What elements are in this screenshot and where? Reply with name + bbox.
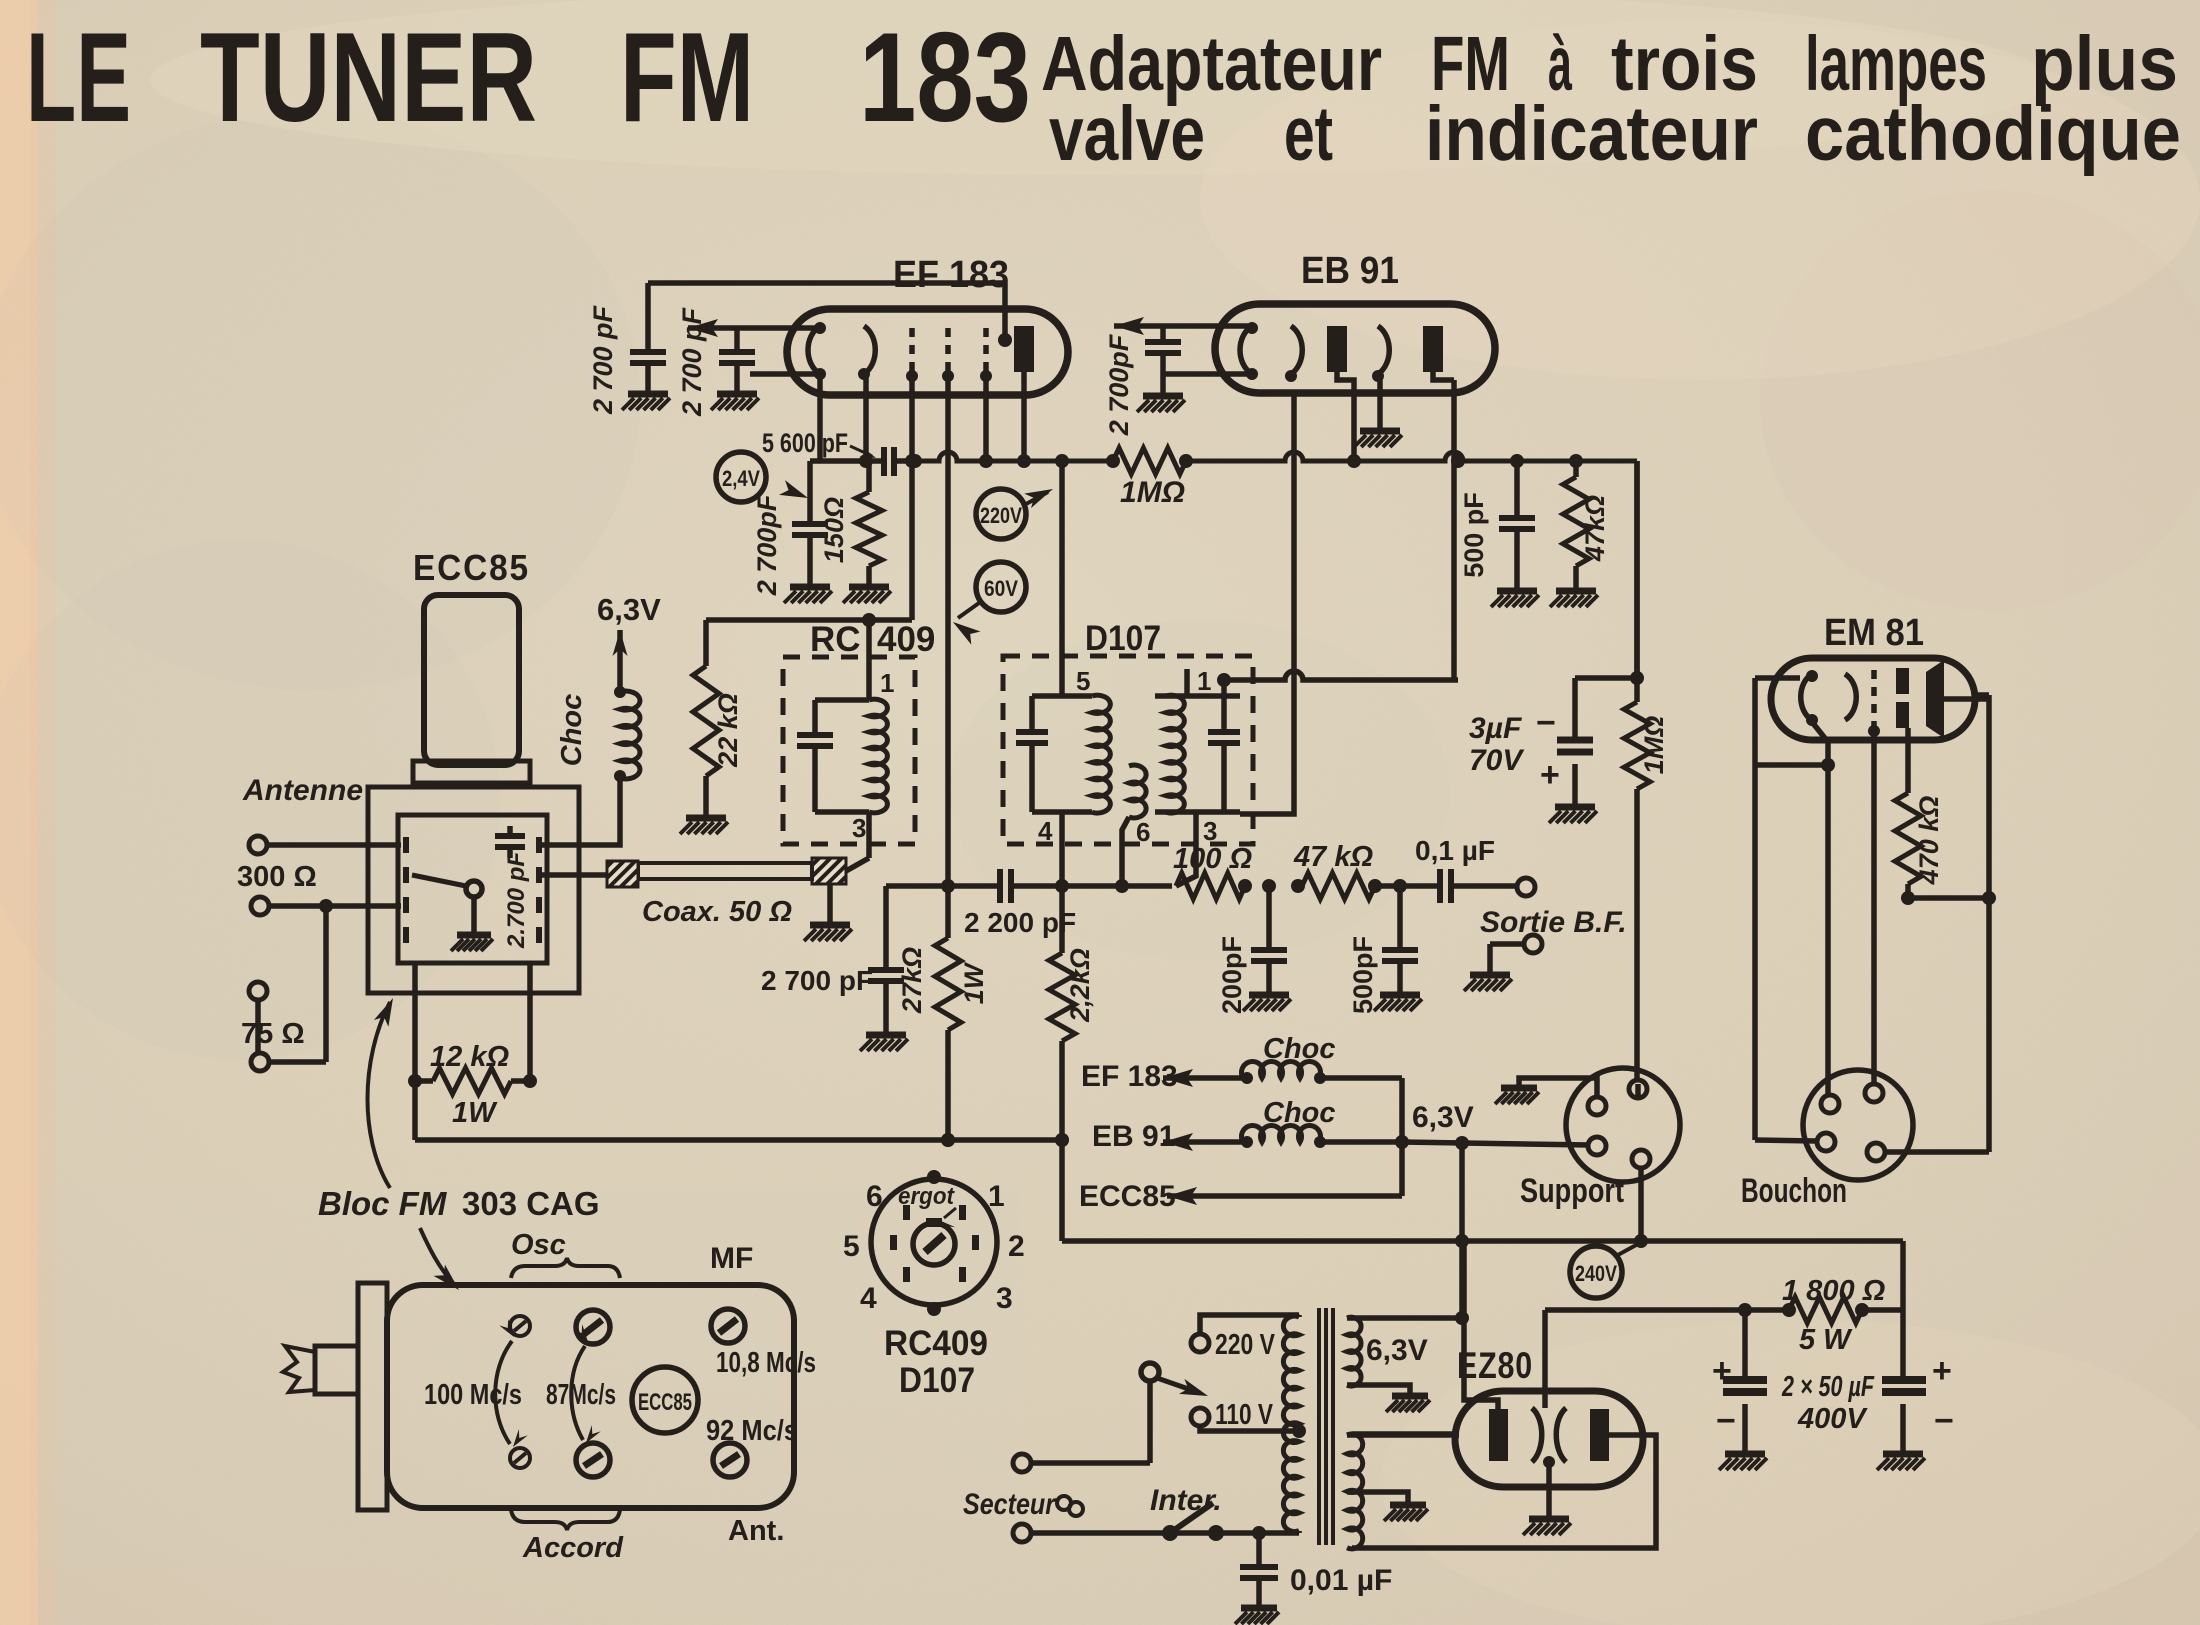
svg-text:0,01 µF: 0,01 µF [1290,1564,1392,1597]
svg-text:92 Mc/s: 92 Mc/s [706,1415,798,1447]
svg-text:2.700 pF: 2.700 pF [503,851,530,949]
svg-text:2 700pF: 2 700pF [1104,333,1134,436]
svg-text:2 700 pF: 2 700 pF [588,304,618,415]
svg-text:LE: LE [26,6,131,148]
svg-text:FM: FM [620,6,754,148]
svg-text:Bouchon: Bouchon [1741,1172,1847,1210]
svg-text:6,3V: 6,3V [597,592,661,627]
svg-text:3: 3 [1203,816,1217,846]
svg-text:Choc: Choc [1263,1097,1336,1129]
svg-text:1 800 Ω: 1 800 Ω [1782,1275,1886,1307]
svg-text:220V: 220V [980,503,1022,528]
svg-text:+: + [1932,1352,1952,1390]
svg-text:100 Ω: 100 Ω [1173,843,1252,875]
svg-text:22 kΩ: 22 kΩ [713,693,743,768]
svg-text:5: 5 [843,1230,860,1263]
svg-text:D107: D107 [899,1361,975,1400]
svg-text:EB 91: EB 91 [1092,1120,1175,1153]
svg-text:6: 6 [866,1180,883,1213]
svg-text:Support: Support [1520,1172,1624,1210]
svg-text:EF 183: EF 183 [893,254,1009,296]
svg-text:+: + [1712,1352,1732,1390]
svg-text:MF: MF [710,1242,753,1275]
svg-text:500 pF: 500 pF [1459,492,1489,578]
svg-text:70V: 70V [1469,744,1525,777]
svg-text:1: 1 [880,668,894,698]
svg-text:Choc: Choc [556,694,588,767]
svg-text:0,1 µF: 0,1 µF [1415,835,1495,866]
svg-text:valve: valve [1049,91,1205,177]
svg-text:Coax. 50 Ω: Coax. 50 Ω [642,896,792,928]
svg-text:1W: 1W [452,1097,498,1129]
svg-text:470 kΩ: 470 kΩ [1914,796,1944,886]
svg-text:27kΩ: 27kΩ [897,947,927,1014]
svg-text:D107: D107 [1085,619,1161,658]
svg-text:2,2kΩ: 2,2kΩ [1065,948,1095,1023]
svg-text:Secteur: Secteur [963,1488,1057,1521]
svg-text:3µF: 3µF [1469,712,1522,745]
svg-text:10,8 Mc/s: 10,8 Mc/s [716,1347,816,1379]
svg-text:60V: 60V [984,576,1018,601]
svg-text:ergot: ergot [898,1183,955,1210]
svg-text:6,3V: 6,3V [1412,1101,1474,1134]
svg-text:300 Ω: 300 Ω [237,861,317,893]
svg-text:5: 5 [1076,666,1090,696]
svg-text:RC409: RC409 [884,1324,988,1363]
svg-text:ECC85: ECC85 [1079,1180,1176,1213]
svg-text:1: 1 [1197,666,1211,696]
svg-text:cathodique: cathodique [1805,91,2181,177]
svg-text:−: − [1934,1402,1954,1440]
svg-text:3: 3 [996,1282,1013,1315]
svg-text:500pF: 500pF [1348,936,1378,1014]
svg-text:2 700 pF: 2 700 pF [761,965,873,996]
svg-text:−: − [1536,704,1556,742]
svg-text:2 700pF: 2 700pF [752,493,782,596]
svg-text:Sortie B.F.: Sortie B.F. [1480,906,1627,939]
svg-text:240V: 240V [1575,1261,1617,1286]
svg-text:et: et [1284,91,1333,177]
svg-text:Antenne: Antenne [242,774,363,807]
svg-text:2 × 50 µF: 2 × 50 µF [1781,1371,1875,1403]
svg-text:110 V: 110 V [1215,1399,1274,1431]
svg-text:100 Mc/s: 100 Mc/s [424,1379,522,1411]
svg-text:EM 81: EM 81 [1824,612,1924,654]
svg-text:183: 183 [859,6,1031,148]
svg-text:Choc: Choc [1263,1033,1336,1065]
svg-text:400V: 400V [1797,1403,1868,1435]
svg-text:220 V: 220 V [1215,1329,1276,1361]
svg-text:indicateur: indicateur [1425,91,1758,177]
svg-text:4: 4 [1038,816,1053,846]
svg-text:75 Ω: 75 Ω [241,1018,305,1050]
svg-text:ECC85: ECC85 [413,547,530,588]
svg-text:2 700 pF: 2 700 pF [677,306,707,417]
svg-text:RC: RC [810,620,861,659]
svg-text:5 W: 5 W [1799,1324,1853,1356]
svg-text:5 600 pF: 5 600 pF [762,428,848,458]
svg-text:3: 3 [852,813,866,843]
svg-text:EB 91: EB 91 [1301,250,1399,292]
svg-text:+: + [1540,756,1560,794]
svg-text:2: 2 [1008,1230,1025,1263]
svg-text:47kΩ: 47kΩ [1580,495,1610,562]
svg-text:409: 409 [877,620,935,659]
svg-text:12 kΩ: 12 kΩ [430,1041,509,1073]
svg-text:6: 6 [1136,817,1150,847]
svg-text:6,3V: 6,3V [1366,1334,1428,1367]
svg-text:1W: 1W [959,961,989,1004]
svg-text:TUNER: TUNER [200,6,537,148]
svg-text:303 CAG: 303 CAG [462,1185,600,1222]
svg-text:Ant.: Ant. [728,1515,784,1547]
svg-text:ECC85: ECC85 [638,1389,692,1416]
svg-text:87Mc/s: 87Mc/s [546,1379,616,1411]
svg-text:Bloc FM: Bloc FM [318,1185,448,1222]
svg-text:Osc: Osc [511,1229,566,1261]
svg-text:47 kΩ: 47 kΩ [1293,841,1373,873]
svg-text:EZ80: EZ80 [1457,1345,1533,1386]
svg-text:Accord: Accord [522,1532,624,1564]
svg-text:1: 1 [988,1180,1005,1213]
svg-text:200pF: 200pF [1217,936,1247,1014]
svg-text:1MΩ: 1MΩ [1639,716,1669,775]
svg-text:1MΩ: 1MΩ [1120,476,1185,509]
svg-text:Inter.: Inter. [1150,1484,1222,1517]
svg-text:2,4V: 2,4V [722,466,760,491]
svg-text:−: − [1716,1402,1736,1440]
svg-text:150Ω: 150Ω [819,497,849,563]
svg-text:4: 4 [860,1282,877,1315]
